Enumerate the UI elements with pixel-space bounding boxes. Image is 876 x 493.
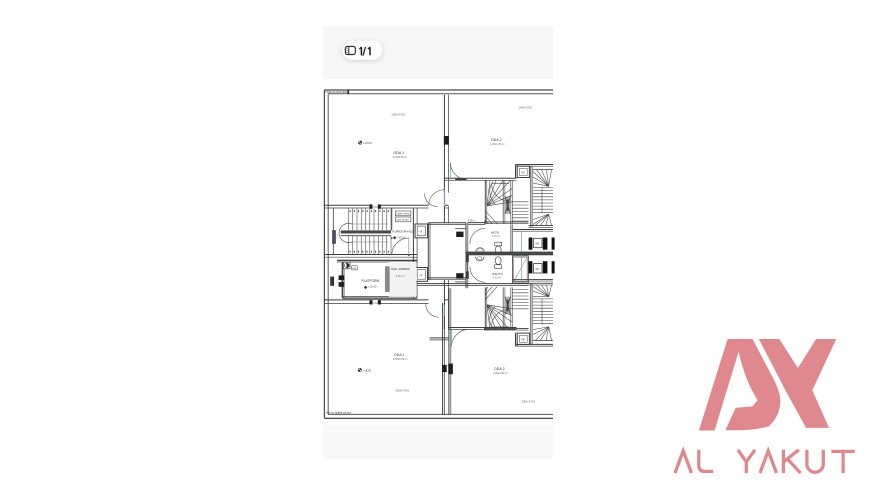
svg-text:ODA 1: ODA 1 [394, 353, 405, 357]
svg-text:KB: KB [521, 171, 525, 175]
svg-text:4.05x4.45 m²: 4.05x4.45 m² [493, 372, 508, 375]
svg-text:2066+ATS2: 2066+ATS2 [522, 399, 536, 403]
svg-text:4.62: 4.62 [373, 302, 378, 305]
svg-text:4.05x5.08 m²: 4.05x5.08 m² [393, 156, 408, 159]
svg-text:2066+ATS2: 2066+ATS2 [396, 388, 410, 392]
svg-text:4.10 m²: 4.10 m² [493, 277, 501, 280]
svg-text:4.50 m²: 4.50 m² [396, 274, 405, 278]
svg-text:KORİDOR+HOL: KORİDOR+HOL [392, 229, 414, 234]
svg-text:4.05x4.45 m²: 4.05x4.45 m² [490, 143, 505, 146]
svg-text:DAİRE GİRİŞİ: DAİRE GİRİŞİ [396, 213, 410, 216]
svg-text:ODA 1: ODA 1 [394, 151, 405, 155]
svg-text:KB: KB [536, 243, 540, 246]
svg-text:2066+ATS2: 2066+ATS2 [519, 105, 533, 109]
svg-text:4.10 m²: 4.10 m² [492, 235, 500, 238]
svg-text:+15.00: +15.00 [368, 284, 377, 288]
svg-text:+15.00: +15.00 [363, 141, 372, 145]
svg-text:ODA 2: ODA 2 [491, 138, 502, 142]
svg-text:+15.00: +15.00 [363, 368, 372, 372]
svg-text:4.06 m: 4.06 m [468, 220, 475, 223]
svg-text:PLATFORM: PLATFORM [362, 279, 380, 283]
svg-text:FİRMA ADI TESCİLİDİR: FİRMA ADI TESCİLİDİR [326, 89, 348, 94]
svg-text:MAK. DAİRESİ: MAK. DAİRESİ [391, 266, 410, 271]
svg-text:4.05x5.08 m²: 4.05x5.08 m² [393, 358, 408, 361]
svg-text:BANYO: BANYO [493, 272, 504, 276]
svg-text:KB: KB [536, 268, 540, 271]
svg-text:WC/D: WC/D [491, 230, 500, 234]
svg-text:+15.00: +15.00 [397, 236, 406, 240]
svg-text:ODA 2: ODA 2 [494, 367, 505, 371]
svg-text:KAPI DETAYI: KAPI DETAYI [396, 219, 409, 222]
svg-text:2066+ATS2: 2066+ATS2 [392, 113, 406, 117]
svg-text:KB: KB [521, 337, 525, 341]
svg-text:A-A: A-A [352, 267, 356, 270]
svg-text:ölçü ve kotlara uyunuz: ölçü ve kotlara uyunuz [326, 412, 352, 415]
